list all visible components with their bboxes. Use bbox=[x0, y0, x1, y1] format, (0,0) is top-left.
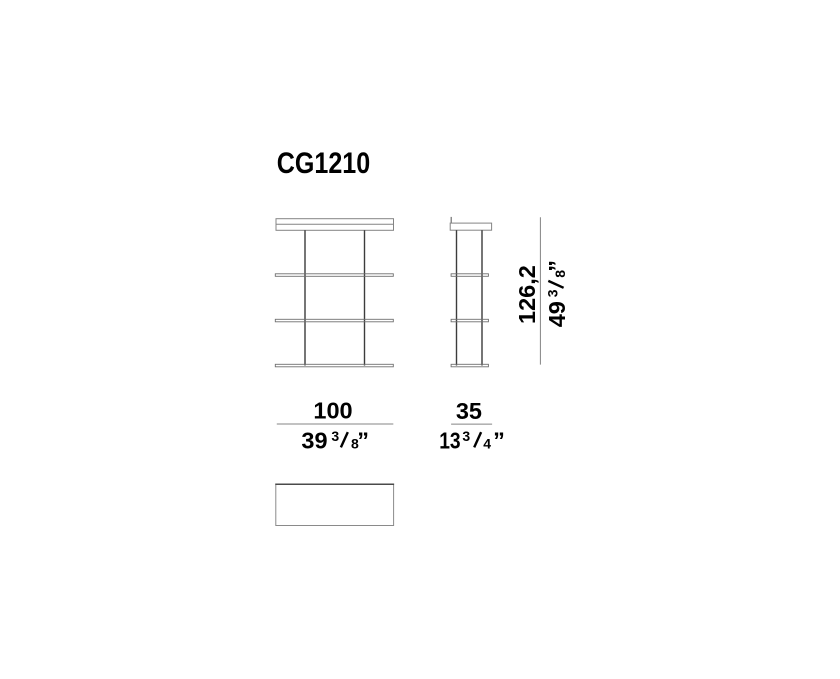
svg-text:49: 49 bbox=[544, 301, 570, 327]
svg-text:3: 3 bbox=[462, 428, 470, 444]
svg-text:CG1210: CG1210 bbox=[277, 146, 370, 179]
svg-text:4: 4 bbox=[483, 436, 491, 452]
svg-text:35: 35 bbox=[456, 398, 482, 424]
svg-text:13: 13 bbox=[439, 428, 460, 454]
svg-text:126,2: 126,2 bbox=[514, 265, 540, 324]
svg-text:100: 100 bbox=[313, 398, 352, 424]
svg-text:3: 3 bbox=[331, 428, 339, 444]
svg-text:39: 39 bbox=[301, 428, 327, 454]
svg-text:”: ” bbox=[357, 428, 369, 454]
svg-text:”: ” bbox=[493, 428, 505, 454]
svg-text:”: ” bbox=[544, 260, 570, 272]
svg-text:3: 3 bbox=[544, 289, 560, 297]
